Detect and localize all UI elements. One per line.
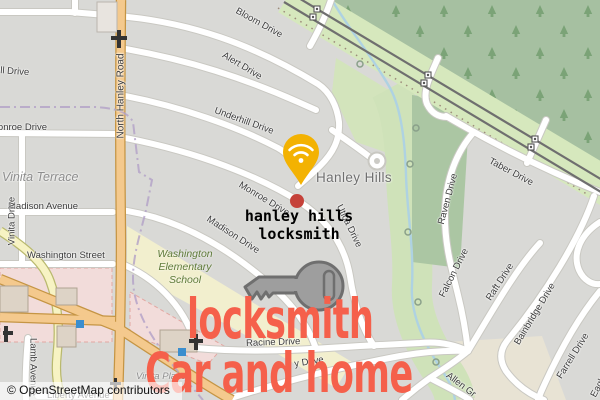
street-label-north-hanley-road: North Hanley Road <box>116 53 127 138</box>
school-label-line1: Washington <box>147 248 223 261</box>
street-label-vinita-drive: Vinita Drive <box>7 197 18 245</box>
turning-circle <box>369 153 386 170</box>
school-label-line3: School <box>147 274 223 287</box>
street-label-madison-avenue: Madison Avenue <box>8 201 78 212</box>
street-label-monroe-drive-west: Monroe Drive <box>0 122 47 133</box>
school-label-line2: Elementary <box>147 261 223 274</box>
place-label-vinita-terrace: Vinita Terrace <box>2 170 78 184</box>
headline-line1: locksmith <box>187 292 373 347</box>
osm-attribution[interactable]: © OpenStreetMap contributors <box>0 382 182 400</box>
marker-caption-line1: hanley hills <box>235 208 363 226</box>
map-viewport[interactable]: Bloom Drive Alert Drive Underhill Drive … <box>0 0 600 400</box>
location-dot[interactable] <box>290 194 304 208</box>
street-label-washington-street: Washington Street <box>27 250 105 261</box>
school-area-label: Washington Elementary School <box>147 248 223 287</box>
headline-line2: Car and home <box>145 346 413 400</box>
marker-caption-line2: locksmith <box>235 226 363 244</box>
place-label-hanley-hills: Hanley Hills <box>316 170 392 185</box>
marker-caption: hanley hills locksmith <box>235 208 363 243</box>
